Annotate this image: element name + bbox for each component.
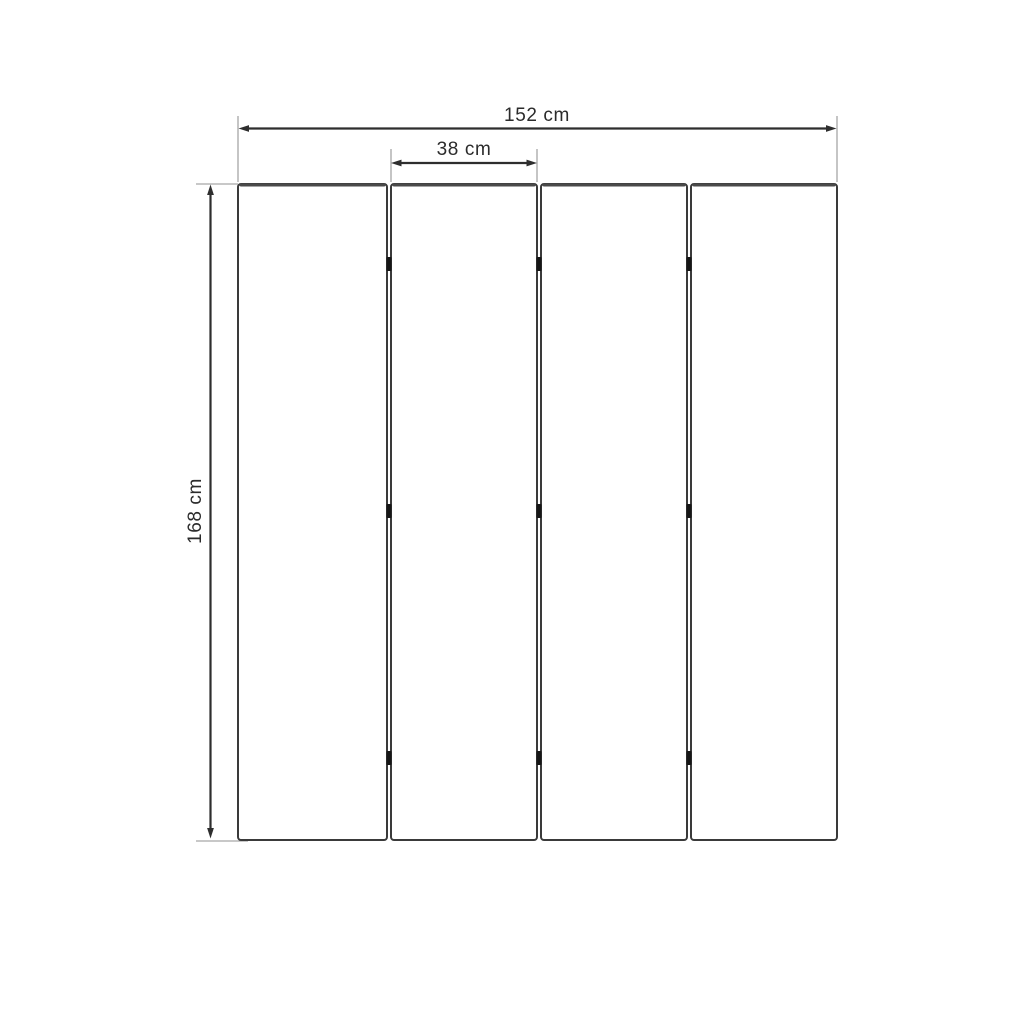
panel-1 xyxy=(238,184,387,840)
hinge xyxy=(537,751,542,765)
arrowhead-right-icon xyxy=(826,125,837,132)
hinge xyxy=(387,504,392,518)
total-width-dimension-label: 152 cm xyxy=(504,105,570,126)
panel-width-dimension-label: 38 cm xyxy=(437,139,492,160)
arrowhead-right-icon xyxy=(527,160,538,167)
folding-screen-diagram: 152 cm 38 cm 168 cm xyxy=(0,0,1024,1024)
panel-3 xyxy=(541,184,687,840)
panel-2 xyxy=(391,184,537,840)
height-dimension-label: 168 cm xyxy=(185,478,206,544)
arrowhead-up-icon xyxy=(207,185,214,196)
panel-4 xyxy=(691,184,837,840)
hinge xyxy=(687,504,692,518)
hinge xyxy=(387,751,392,765)
dimension-diagram-canvas: 152 cm 38 cm 168 cm xyxy=(0,0,1024,1024)
arrowhead-down-icon xyxy=(207,828,214,839)
arrowhead-left-icon xyxy=(391,160,402,167)
hinge xyxy=(387,257,392,271)
hinge xyxy=(537,257,542,271)
arrowhead-left-icon xyxy=(239,125,250,132)
hinge xyxy=(687,751,692,765)
hinge xyxy=(537,504,542,518)
hinge xyxy=(687,257,692,271)
